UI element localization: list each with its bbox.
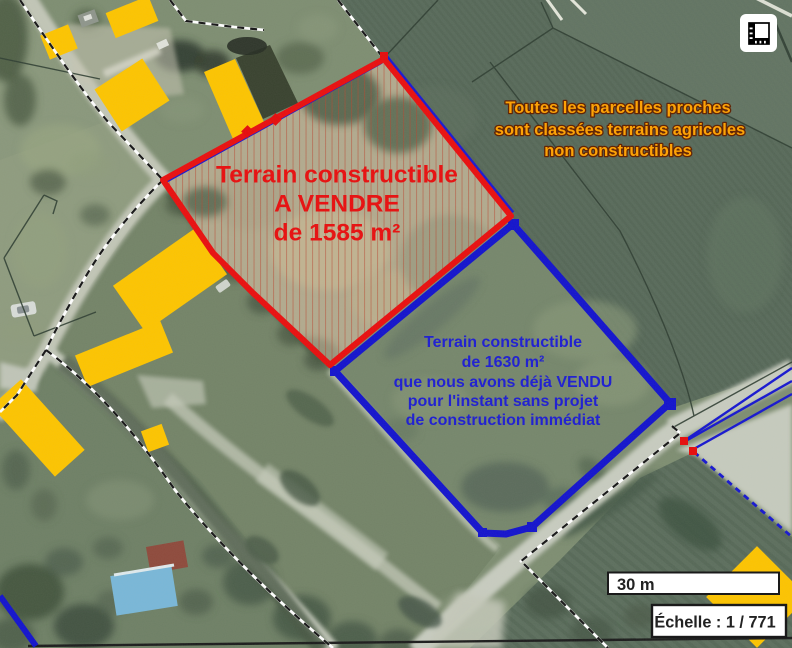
- svg-text:30 m: 30 m: [617, 576, 655, 594]
- svg-text:Échelle : 1 / 771: Échelle : 1 / 771: [654, 613, 775, 632]
